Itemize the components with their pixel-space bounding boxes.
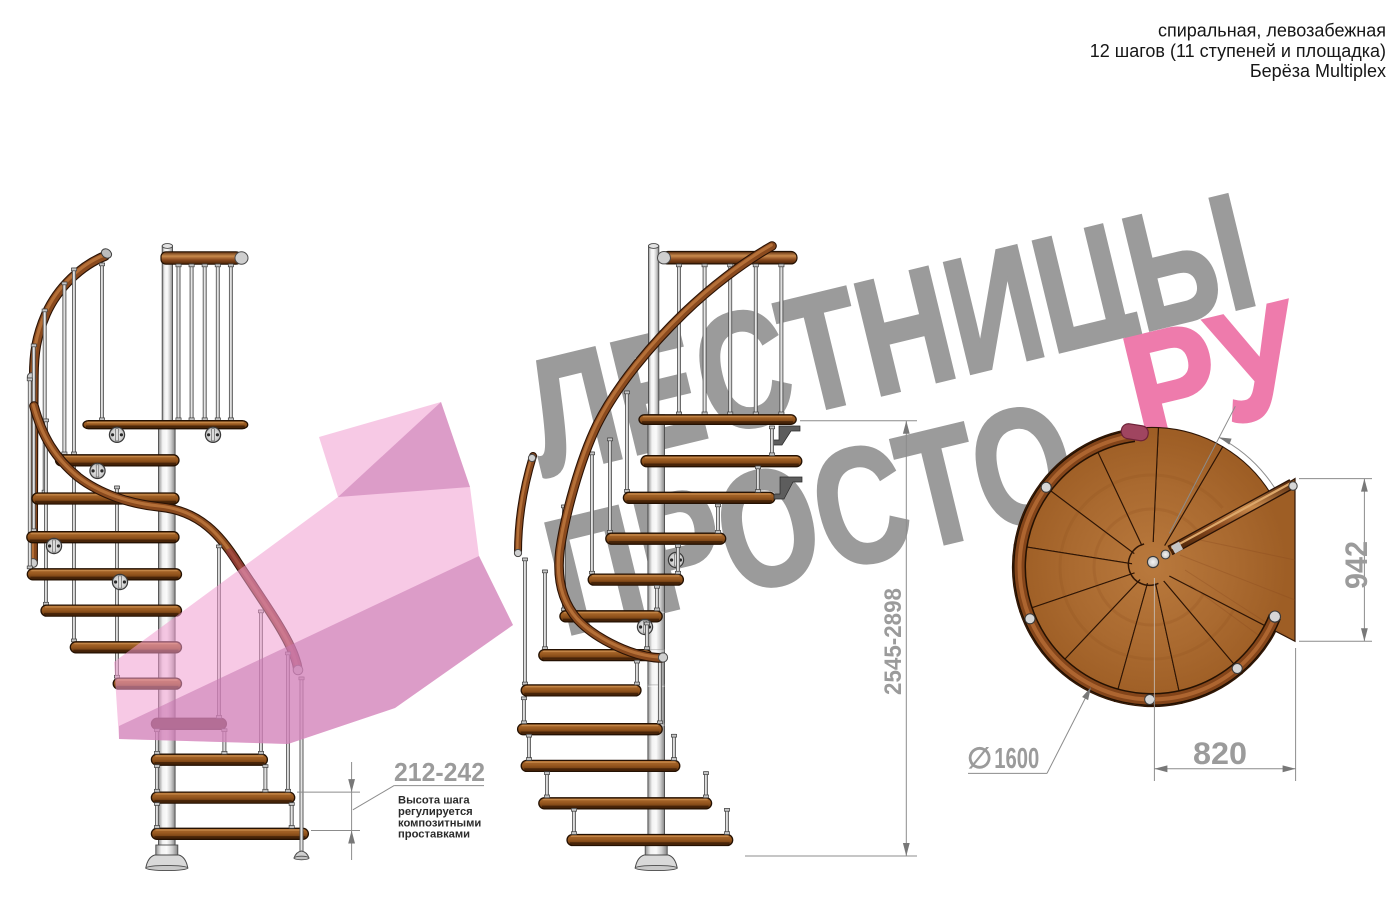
svg-text:∅1600: ∅1600 bbox=[967, 743, 1039, 775]
svg-text:Высота шагарегулируетсякомпози: Высота шагарегулируетсякомпозитнымипрост… bbox=[398, 795, 481, 841]
svg-text:12 шагов (11 ступеней и площад: 12 шагов (11 ступеней и площадка) bbox=[1090, 41, 1386, 61]
svg-text:212-242: 212-242 bbox=[394, 757, 485, 787]
svg-text:спиральная, левозабежная: спиральная, левозабежная bbox=[1158, 21, 1386, 41]
svg-text:942: 942 bbox=[1338, 541, 1374, 589]
svg-text:2545-2898: 2545-2898 bbox=[880, 588, 907, 695]
svg-text:820: 820 bbox=[1193, 735, 1247, 771]
svg-text:Берёза Multiplex: Берёза Multiplex bbox=[1250, 61, 1386, 81]
